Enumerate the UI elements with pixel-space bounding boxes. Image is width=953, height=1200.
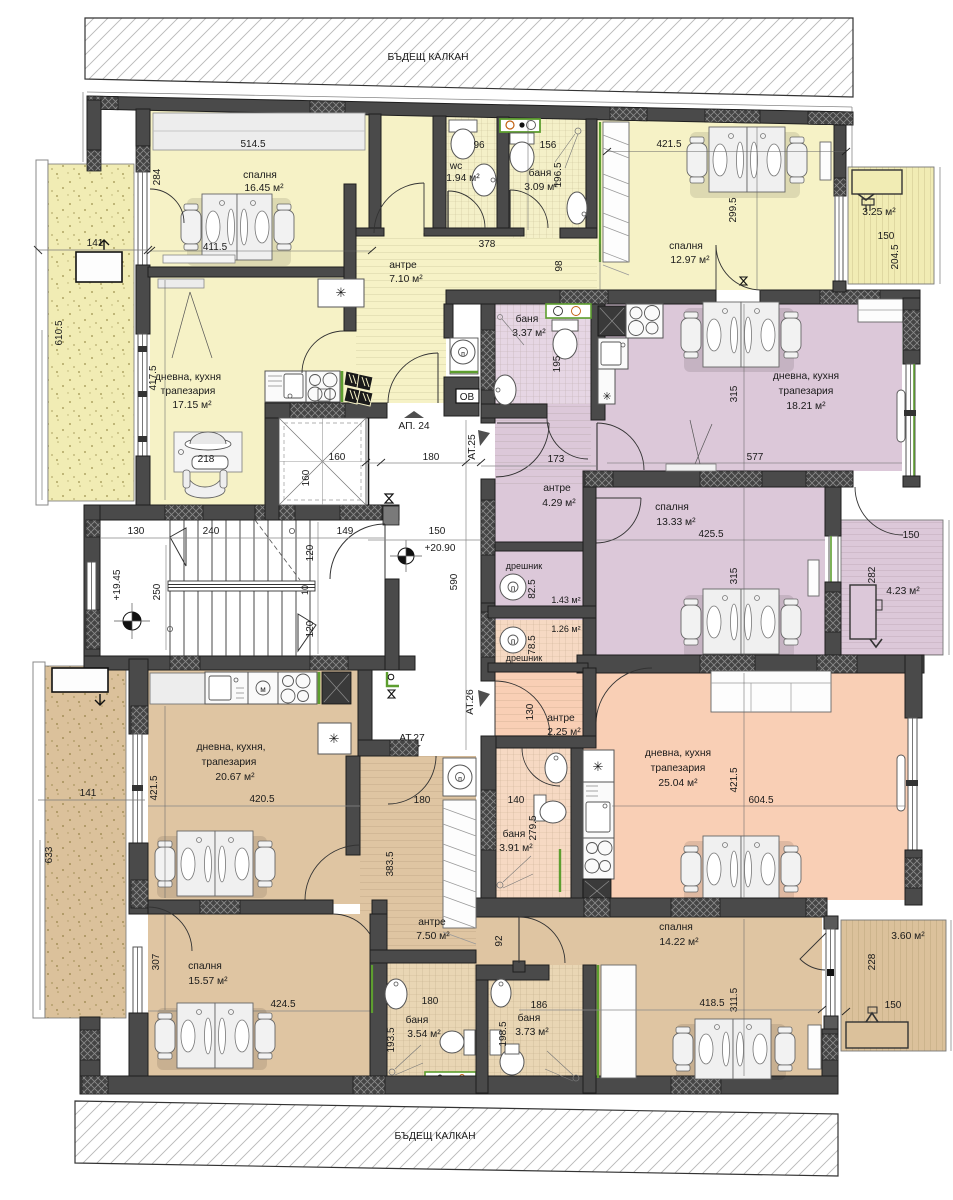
svg-text:150: 150 [878, 231, 895, 242]
svg-text:м: м [260, 685, 266, 694]
svg-text:421.5: 421.5 [729, 767, 740, 792]
svg-text:96: 96 [473, 140, 485, 151]
svg-text:+20.90: +20.90 [425, 543, 456, 554]
svg-text:299.5: 299.5 [728, 197, 739, 222]
svg-text:3.25 м²: 3.25 м² [862, 207, 896, 218]
svg-text:1.26 м²: 1.26 м² [551, 624, 580, 634]
svg-text:4.23 м²: 4.23 м² [886, 586, 920, 597]
svg-text:180: 180 [422, 996, 439, 1007]
svg-text:3.60 м²: 3.60 м² [891, 931, 925, 942]
svg-text:150: 150 [885, 1000, 902, 1011]
svg-text:421.5: 421.5 [149, 775, 160, 800]
svg-text:25.04 м²: 25.04 м² [658, 778, 698, 789]
svg-text:20.67 м²: 20.67 м² [215, 772, 255, 783]
svg-text:610.5: 610.5 [54, 320, 65, 345]
svg-text:383.5: 383.5 [385, 851, 396, 876]
svg-text:3.54 м²: 3.54 м² [407, 1029, 441, 1040]
svg-text:140: 140 [508, 795, 525, 806]
svg-text:✳: ✳ [593, 759, 604, 774]
svg-text:спалня: спалня [659, 922, 693, 933]
svg-text:282: 282 [867, 566, 878, 583]
svg-text:160: 160 [301, 469, 312, 486]
svg-text:417.5: 417.5 [148, 365, 159, 390]
svg-text:трапезария: трапезария [651, 763, 706, 774]
svg-text:307: 307 [151, 953, 162, 970]
svg-text:590: 590 [449, 573, 460, 590]
svg-text:баня: баня [503, 828, 526, 840]
svg-text:антре: антре [418, 917, 446, 928]
svg-text:17.15 м²: 17.15 м² [172, 400, 212, 411]
svg-text:240: 240 [203, 526, 220, 537]
svg-text:411.5: 411.5 [203, 242, 228, 253]
svg-text:186: 186 [531, 1000, 548, 1011]
svg-text:антре: антре [547, 713, 575, 724]
svg-text:✳: ✳ [329, 731, 340, 746]
svg-text:ОВ: ОВ [460, 392, 475, 403]
svg-text:204.5: 204.5 [890, 244, 901, 269]
svg-text:577: 577 [747, 452, 764, 463]
svg-text:трапезария: трапезария [161, 386, 216, 397]
svg-text:120: 120 [305, 620, 316, 637]
svg-text:421.5: 421.5 [656, 139, 681, 150]
svg-text:284: 284 [152, 168, 163, 185]
svg-text:418.5: 418.5 [699, 998, 724, 1009]
svg-text:82.5: 82.5 [527, 579, 538, 599]
svg-text:514.5: 514.5 [240, 139, 265, 150]
svg-text:15.57 м²: 15.57 м² [188, 976, 228, 987]
svg-text:п: п [511, 637, 515, 646]
svg-text:196.5: 196.5 [553, 162, 564, 187]
svg-text:1.43 м²: 1.43 м² [551, 595, 580, 605]
svg-text:дрешник: дрешник [506, 653, 542, 663]
svg-text:дневна, кухня: дневна, кухня [773, 371, 839, 382]
svg-text:120: 120 [305, 544, 316, 561]
svg-text:180: 180 [423, 452, 440, 463]
svg-text:п: п [458, 776, 462, 783]
svg-text:78.5: 78.5 [527, 635, 538, 655]
svg-text:баня: баня [518, 1012, 541, 1024]
svg-text:10: 10 [300, 585, 310, 595]
svg-text:424.5: 424.5 [270, 999, 295, 1010]
svg-text:193.5: 193.5 [386, 1027, 397, 1052]
svg-text:+19.45: +19.45 [112, 569, 123, 600]
svg-text:4.29 м²: 4.29 м² [542, 498, 576, 509]
svg-text:130: 130 [128, 526, 145, 537]
svg-text:425.5: 425.5 [698, 529, 723, 540]
svg-text:14.22 м²: 14.22 м² [659, 937, 699, 948]
svg-text:173: 173 [548, 454, 565, 465]
svg-text:✳: ✳ [336, 285, 347, 300]
svg-text:п: п [461, 351, 465, 358]
svg-text:БЪДЕЩ КАЛКАН: БЪДЕЩ КАЛКАН [387, 52, 468, 63]
svg-text:п: п [511, 584, 515, 593]
svg-text:279.5: 279.5 [528, 815, 539, 840]
svg-text:156: 156 [540, 140, 557, 151]
svg-text:250: 250 [152, 583, 163, 600]
svg-text:12.97 м²: 12.97 м² [670, 255, 710, 266]
svg-text:✳: ✳ [602, 391, 611, 403]
svg-text:3.73 м²: 3.73 м² [515, 1027, 549, 1038]
svg-text:315: 315 [729, 567, 740, 584]
svg-text:98: 98 [554, 260, 565, 272]
svg-text:160: 160 [329, 452, 346, 463]
svg-text:315: 315 [729, 385, 740, 402]
svg-text:дрешник: дрешник [506, 561, 542, 571]
svg-text:спалня: спалня [669, 241, 703, 252]
svg-text:дневна, кухня,: дневна, кухня, [196, 742, 265, 753]
svg-text:антре: антре [389, 260, 417, 271]
svg-text:130: 130 [525, 703, 536, 720]
svg-text:АП. 24: АП. 24 [398, 421, 430, 432]
svg-text:16.45 м²: 16.45 м² [244, 183, 284, 194]
svg-text:604.5: 604.5 [748, 795, 773, 806]
svg-text:спалня: спалня [655, 502, 689, 513]
svg-text:180: 180 [414, 795, 431, 806]
svg-text:150: 150 [429, 526, 446, 537]
svg-text:141: 141 [80, 788, 97, 799]
svg-text:13.33 м²: 13.33 м² [656, 517, 696, 528]
svg-text:18.21 м²: 18.21 м² [786, 401, 826, 412]
svg-text:218: 218 [198, 454, 215, 465]
svg-text:92: 92 [494, 935, 505, 947]
svg-text:1.94 м²: 1.94 м² [446, 173, 480, 184]
svg-text:420.5: 420.5 [249, 794, 274, 805]
svg-text:баня: баня [406, 1014, 429, 1026]
svg-text:7.10 м²: 7.10 м² [389, 274, 423, 285]
svg-text:спалня: спалня [188, 961, 222, 972]
svg-text:АТ.26: АТ.26 [465, 689, 476, 715]
svg-text:wc: wc [449, 161, 463, 172]
svg-text:АТ.25: АТ.25 [467, 434, 478, 460]
svg-text:311.5: 311.5 [729, 987, 740, 1012]
svg-text:150: 150 [903, 530, 920, 541]
svg-text:дневна, кухня: дневна, кухня [645, 748, 711, 759]
svg-text:633: 633 [44, 846, 55, 863]
svg-text:БЪДЕЩ КАЛКАН: БЪДЕЩ КАЛКАН [394, 1131, 475, 1142]
svg-text:трапезария: трапезария [779, 386, 834, 397]
svg-text:3.91 м²: 3.91 м² [499, 843, 533, 854]
svg-text:спалня: спалня [243, 170, 277, 181]
svg-text:7.50 м²: 7.50 м² [416, 931, 450, 942]
svg-text:195: 195 [552, 355, 563, 372]
svg-text:баня: баня [516, 313, 539, 325]
svg-text:141: 141 [87, 238, 104, 249]
svg-text:баня: баня [529, 167, 552, 179]
svg-text:378: 378 [479, 239, 496, 250]
svg-text:антре: антре [543, 483, 571, 494]
svg-text:трапезария: трапезария [202, 757, 257, 768]
svg-text:198.5: 198.5 [498, 1021, 509, 1046]
svg-text:149: 149 [337, 526, 354, 537]
svg-text:228: 228 [867, 953, 878, 970]
